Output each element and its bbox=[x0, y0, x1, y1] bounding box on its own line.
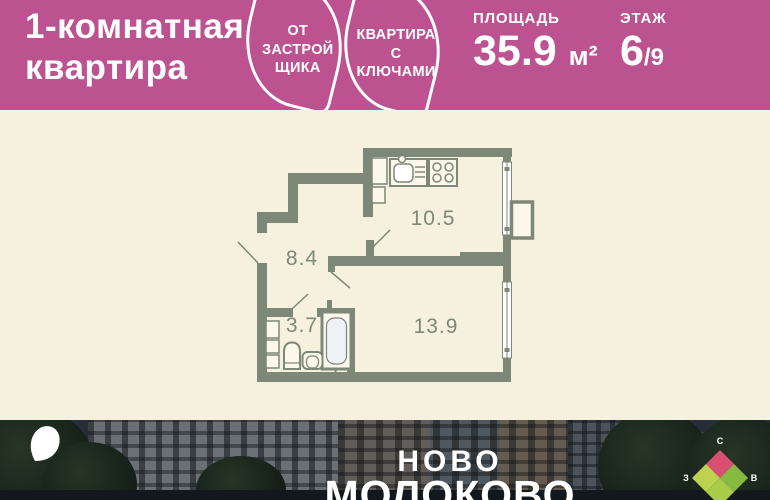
floor-stat: ЭТАЖ 6/9 bbox=[620, 10, 666, 73]
bathroom-area-label: 3.7 bbox=[286, 314, 318, 337]
kitchen-door-swing bbox=[371, 230, 390, 249]
area-stat: ПЛОЩАДЬ 35.9 м² bbox=[473, 10, 598, 73]
hallway-area-label: 8.4 bbox=[286, 247, 318, 270]
bathtub-icon bbox=[322, 312, 351, 377]
compass-east-label: В bbox=[751, 473, 758, 483]
bathroom-sink-icon bbox=[284, 343, 300, 370]
bathroom-door-swing bbox=[292, 294, 308, 309]
badge-from-developer-label: ОТ ЗАСТРОЙ ЩИКА bbox=[262, 22, 333, 78]
floor-plan: 10.5 8.4 3.7 13.9 bbox=[0, 110, 770, 420]
area-unit: м² bbox=[569, 41, 598, 71]
brand-logo: НОВО МОЛОКОВО bbox=[300, 420, 600, 500]
page-title: 1-комнатная квартира bbox=[25, 6, 244, 89]
balcony-door bbox=[512, 202, 533, 238]
area-label: ПЛОЩАДЬ bbox=[473, 10, 598, 27]
compass-icon: С З В bbox=[682, 426, 758, 500]
floor-plan-section: 10.5 8.4 3.7 13.9 bbox=[0, 110, 770, 420]
badge-apartment-with-keys-label: КВАРТИРА С КЛЮЧАМИ bbox=[349, 26, 443, 82]
brand-leaf-icon bbox=[28, 425, 62, 463]
toilet-icon bbox=[303, 352, 323, 369]
stove-icon bbox=[429, 159, 457, 186]
title-line2: квартира bbox=[25, 47, 244, 88]
floor-label: ЭТАЖ bbox=[620, 10, 666, 27]
living-room-door-swing bbox=[331, 272, 350, 288]
floor-total: /9 bbox=[644, 44, 664, 71]
footer-photo: НОВО МОЛОКОВО С З В bbox=[0, 420, 770, 500]
area-value: 35.9 м² bbox=[473, 30, 598, 73]
badge-apartment-with-keys: КВАРТИРА С КЛЮЧАМИ bbox=[328, 0, 455, 110]
title-line1: 1-комнатная bbox=[25, 6, 244, 47]
window-living-room bbox=[503, 282, 512, 358]
entrance-door-swing bbox=[238, 242, 258, 263]
banner: 1-комнатная квартира ОТ ЗАСТРОЙ ЩИКА КВА… bbox=[0, 0, 770, 110]
floor-value: 6/9 bbox=[620, 30, 666, 73]
living-room-area-label: 13.9 bbox=[414, 315, 459, 338]
kitchen-area-label: 10.5 bbox=[411, 207, 456, 230]
brand-line2: МОЛОКОВО bbox=[300, 475, 600, 500]
compass-west-label: З bbox=[683, 473, 689, 483]
badge-from-developer: ОТ ЗАСТРОЙ ЩИКА bbox=[230, 0, 357, 110]
kitchen-sink-icon bbox=[390, 156, 427, 187]
compass-north-label: С bbox=[717, 436, 724, 446]
listing-card: 1-комнатная квартира ОТ ЗАСТРОЙ ЩИКА КВА… bbox=[0, 0, 770, 500]
